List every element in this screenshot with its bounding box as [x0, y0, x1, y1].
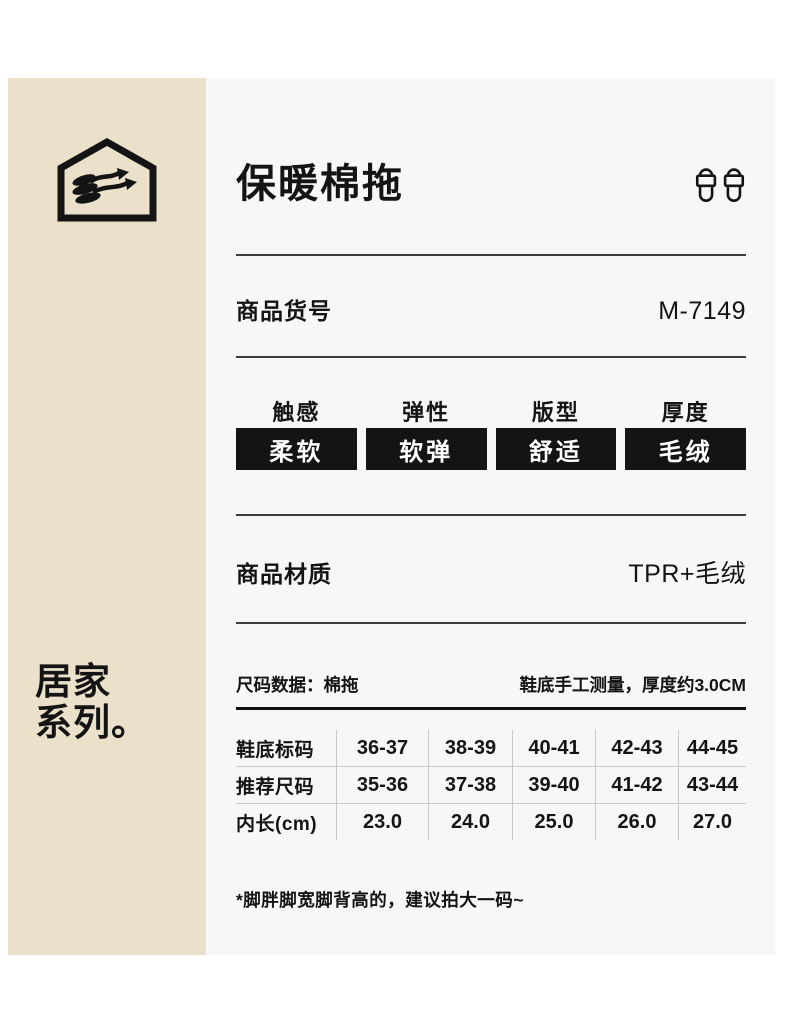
table-cell: 26.0	[595, 804, 678, 840]
series-title-line1: 居家	[35, 661, 149, 702]
table-row-recommended-size: 推荐尺码 35-36 37-38 39-40 41-42 43-44	[236, 766, 746, 803]
header-row: 保暖棉拖	[236, 78, 746, 208]
table-cell: 36-37	[336, 730, 428, 766]
divider	[236, 254, 746, 256]
product-number-row: 商品货号 M-7149	[236, 292, 746, 322]
product-number-value: M-7149	[658, 297, 746, 326]
table-cell: 39-40	[512, 767, 595, 803]
divider	[236, 356, 746, 358]
attribute-fit: 版型 舒适	[496, 395, 617, 470]
size-footnote: *脚胖脚宽脚背高的，建议拍大一码~	[236, 887, 746, 912]
attribute-value-badge: 舒适	[496, 428, 617, 470]
attributes-row: 触感 柔软 弹性 软弹 版型 舒适 厚度 毛绒	[236, 395, 746, 470]
table-cell: 43-44	[678, 767, 746, 803]
series-sidebar: 居家 系列。	[8, 78, 206, 955]
size-data-heading: 尺码数据：棉拖 鞋底手工测量，厚度约3.0CM	[236, 672, 746, 697]
table-row-inner-length: 内长(cm) 23.0 24.0 25.0 26.0 27.0	[236, 803, 746, 840]
house-airflow-icon	[57, 138, 157, 222]
material-row: 商品材质 TPR+毛绒	[236, 554, 746, 584]
slippers-icon	[694, 161, 746, 207]
size-measure-note: 鞋底手工测量，厚度约3.0CM	[519, 672, 746, 697]
attribute-label: 弹性	[366, 395, 487, 421]
table-cell: 41-42	[595, 767, 678, 803]
table-cell: 40-41	[512, 730, 595, 766]
attribute-value-badge: 柔软	[236, 428, 357, 470]
attribute-label: 触感	[236, 395, 357, 421]
material-label: 商品材质	[236, 555, 332, 589]
attribute-value-badge: 软弹	[366, 428, 487, 470]
spec-panel: 保暖棉拖 商品货号 M-7149 触感 柔软 弹性 软弹 版型	[206, 78, 775, 955]
table-cell: 25.0	[512, 804, 595, 840]
divider	[236, 514, 746, 516]
product-title: 保暖棉拖	[236, 160, 404, 208]
table-cell: 42-43	[595, 730, 678, 766]
attribute-value-badge: 毛绒	[625, 428, 746, 470]
attribute-touch: 触感 柔软	[236, 395, 357, 470]
attribute-label: 厚度	[625, 395, 746, 421]
series-title: 居家 系列。	[35, 661, 149, 743]
table-cell: 23.0	[336, 804, 428, 840]
product-number-label: 商品货号	[236, 292, 332, 326]
table-row-sole-size: 鞋底标码 36-37 38-39 40-41 42-43 44-45	[236, 730, 746, 766]
size-data-label: 尺码数据：棉拖	[236, 672, 359, 697]
product-sheet-page: { "colors": { "sidebar_bg": "#ebe1ca", "…	[0, 0, 790, 1017]
attribute-label: 版型	[496, 395, 617, 421]
size-table: 鞋底标码 36-37 38-39 40-41 42-43 44-45 推荐尺码 …	[236, 707, 746, 840]
row-label: 推荐尺码	[236, 767, 336, 803]
divider	[236, 622, 746, 624]
table-cell: 37-38	[428, 767, 512, 803]
table-cell: 38-39	[428, 730, 512, 766]
material-value: TPR+毛绒	[628, 554, 746, 590]
table-cell: 35-36	[336, 767, 428, 803]
series-title-line2: 系列。	[35, 702, 149, 743]
attribute-elasticity: 弹性 软弹	[366, 395, 487, 470]
row-label: 鞋底标码	[236, 730, 336, 766]
row-label: 内长(cm)	[236, 804, 336, 840]
attribute-thickness: 厚度 毛绒	[625, 395, 746, 470]
table-cell: 27.0	[678, 804, 746, 840]
table-cell: 44-45	[678, 730, 746, 766]
table-cell: 24.0	[428, 804, 512, 840]
